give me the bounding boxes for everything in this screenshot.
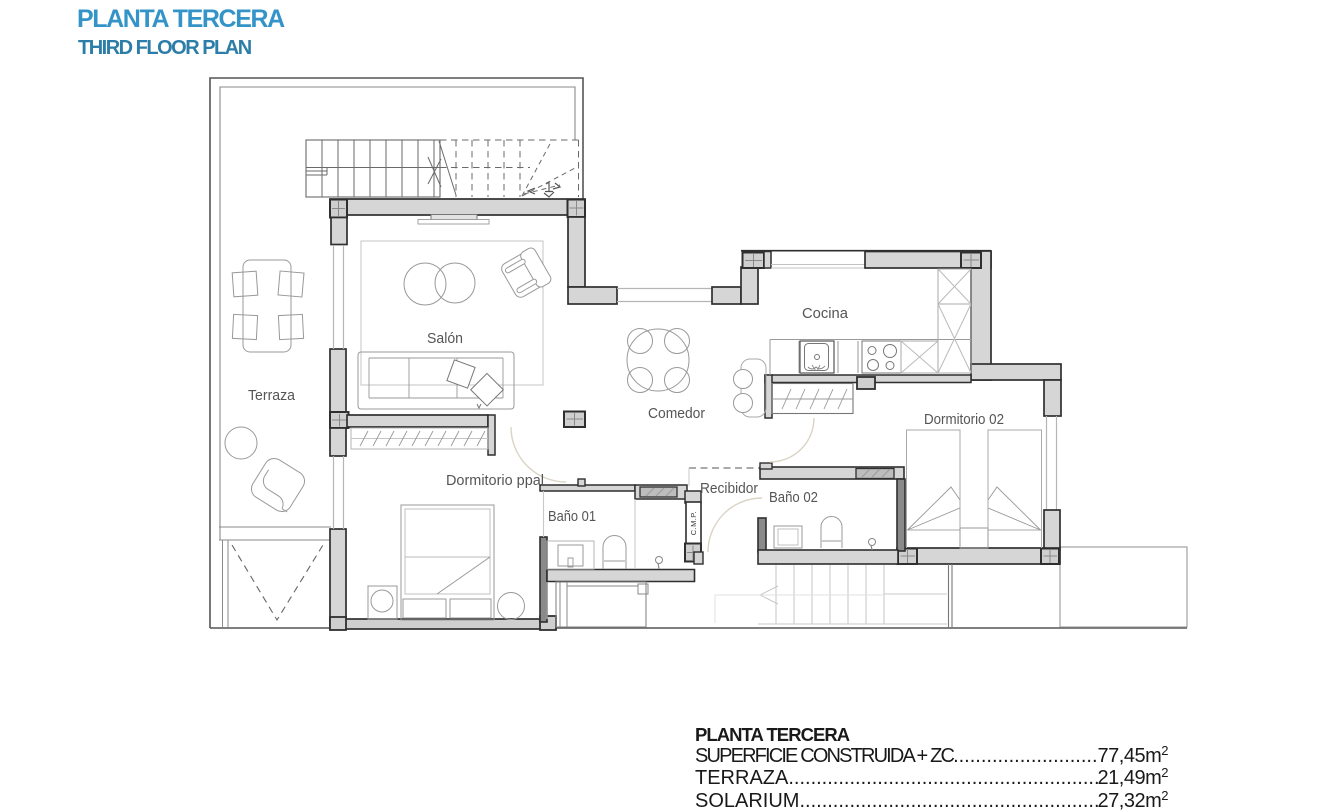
svg-text:Comedor: Comedor	[648, 405, 705, 422]
svg-text:Terraza: Terraza	[248, 387, 296, 404]
svg-text:C.M.P.: C.M.P.	[689, 511, 698, 535]
svg-text:Baño 01: Baño 01	[548, 508, 596, 525]
svg-text:Recibidor: Recibidor	[700, 480, 758, 497]
svg-text:Baño 02: Baño 02	[769, 489, 818, 506]
svg-text:Dormitorio 02: Dormitorio 02	[924, 411, 1004, 428]
svg-text:Salón: Salón	[427, 330, 463, 347]
svg-text:Cocina: Cocina	[802, 305, 849, 322]
svg-text:Dormitorio ppal: Dormitorio ppal	[446, 472, 544, 489]
